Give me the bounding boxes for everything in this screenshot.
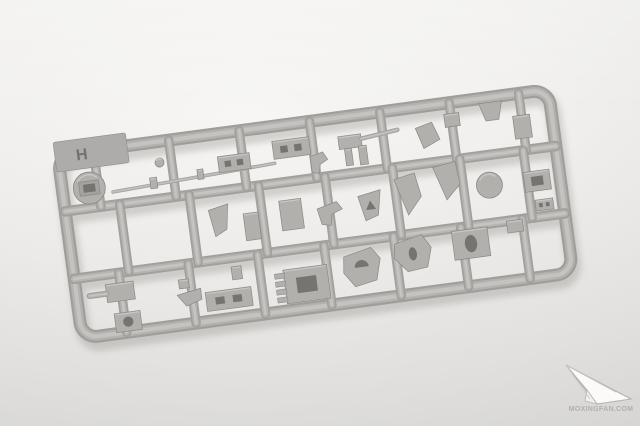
part-plate [243,212,261,241]
watermark-text: MOXINGFAN.COM [569,406,634,413]
part-long-box-hole [215,296,225,304]
part-comb-box-hole [296,275,318,293]
part-wedge-small [415,121,441,149]
part-comb-box-tooth [276,289,287,295]
part-mg-leg-a-highlight [346,149,351,150]
watermark: MOXINGFAN.COM [566,365,633,413]
part-rod-collar-a-highlight [151,178,156,179]
part-right-conn-hole [546,202,550,207]
part-comb-box-tooth [278,297,289,303]
part-mg-leg-b-highlight [359,146,365,147]
sprue-letter-plate [53,133,129,172]
part-right-conn-hole [539,203,543,208]
part-rod-collar-b-highlight [198,170,202,171]
part-tall-box [513,114,533,139]
part-vent-box-hole [280,145,288,153]
part-hatch-disc-core-hole [83,183,96,193]
part-vent-box-hole [294,143,302,151]
sprue-frame: H [53,77,573,339]
paper-airplane-icon [566,365,631,404]
part-hopper [479,101,504,122]
part-comb-box-tooth [275,281,286,287]
part-mg-leg-b [358,145,368,165]
part-right-box-hole [531,175,544,186]
photo-canvas: H MOXINGFAN.COM [0,0,640,426]
part-long-box-hole [232,294,242,302]
part-comb-box-tooth [274,273,285,279]
sprue-letter: H [75,146,89,164]
sprue-photo-svg: H MOXINGFAN.COM [0,0,640,426]
part-linkage [316,201,344,227]
part-receiver-box-hole [236,159,243,166]
part-mg-leg-a [344,148,353,166]
part-mid-box [279,198,305,231]
part-receiver-box-hole [224,160,231,167]
part-down-wedge [208,204,232,237]
